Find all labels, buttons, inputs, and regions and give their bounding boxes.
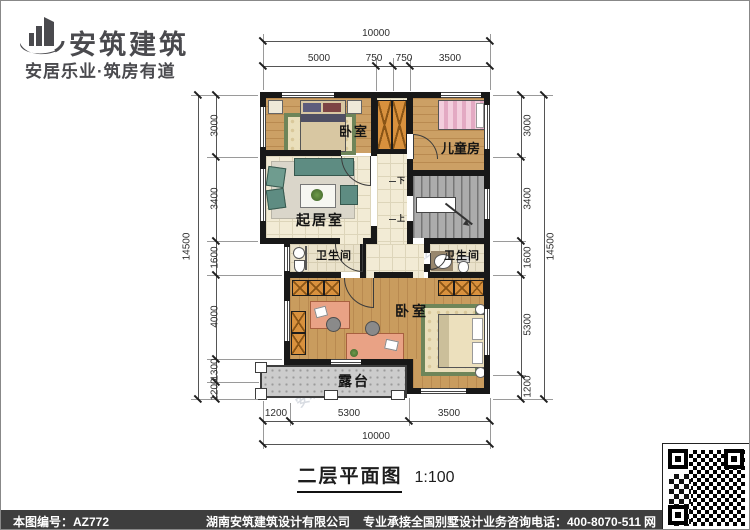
dim-top-seg: 750 (360, 53, 388, 64)
wall (377, 150, 407, 154)
dim-right-seg: 3400 (523, 177, 534, 221)
qr-code (662, 443, 750, 530)
room-label-terrace: 露台 (338, 371, 370, 391)
window (484, 105, 490, 149)
footer-bar: 本图编号：AZ772 湖南安筑建筑设计有限公司 专业承接全国别墅设计业务 咨询电… (1, 510, 750, 530)
dim-top-total: 10000 (341, 28, 411, 39)
drawing-title: 二层平面图 (297, 461, 402, 493)
dim-bottom-seg: 5300 (319, 408, 379, 419)
wall (260, 150, 341, 156)
window (284, 301, 290, 341)
room-label-children: 儿童房 (441, 138, 480, 157)
window (282, 92, 334, 98)
wall (424, 244, 430, 253)
wardrobe (392, 100, 407, 150)
wardrobe (470, 280, 484, 296)
terrace-post (255, 362, 267, 373)
drawing-sheet: 安筑建筑 安居乐业·筑房有道 安筑建筑hnaz.com 安筑建筑hnaz.com… (0, 0, 750, 530)
service-text: 专业承接全国别墅设计业务 (363, 513, 507, 530)
wall (371, 92, 377, 156)
wardrobe (324, 280, 340, 296)
dim-right-seg: 1600 (523, 236, 534, 280)
room-label-living: 起居室 (296, 210, 344, 230)
laptop (314, 306, 328, 319)
web-char: 网 (644, 513, 656, 530)
pillow (303, 103, 321, 112)
dim-line (263, 421, 490, 422)
door-leaf (370, 156, 371, 186)
company-name: 湖南安筑建筑设计有限公司 (206, 513, 350, 530)
wardrobe (292, 280, 308, 296)
wall (260, 238, 340, 244)
window (484, 309, 490, 355)
qr-finder (668, 449, 688, 469)
dim-bottom-total: 10000 (341, 431, 411, 442)
wardrobe (291, 333, 306, 355)
stair-label-up: 上 (397, 213, 405, 224)
wardrobe (291, 311, 306, 333)
window (260, 107, 266, 147)
dim-line (263, 444, 490, 445)
desk-chair (326, 317, 341, 332)
armchair (266, 188, 287, 210)
door-leaf (362, 244, 363, 272)
pillow (472, 342, 483, 364)
terrace-door (331, 359, 361, 365)
dim-right-seg: 3000 (523, 104, 534, 148)
plant (311, 189, 323, 201)
qr-finder (724, 449, 744, 469)
armchair (340, 185, 358, 205)
pillow (476, 103, 484, 128)
bath-partition (305, 246, 307, 270)
dim-top-seg: 750 (390, 53, 418, 64)
phone-text: 咨询电话：400-8070-511 (507, 513, 641, 530)
blanket-fold (439, 315, 449, 367)
room-label-bedroom-bottom: 卧室 (395, 301, 429, 321)
window (260, 169, 266, 221)
wardrobe (377, 100, 392, 150)
dim-right-total: 14500 (546, 225, 557, 269)
drawing-scale: 1:100 (414, 469, 454, 487)
dim-left-seg: 3000 (210, 104, 221, 148)
plant (350, 349, 358, 357)
pillow (323, 103, 341, 112)
room-label-bath-left: 卫生间 (316, 247, 352, 263)
wall (407, 221, 413, 244)
door-leaf (413, 134, 414, 159)
wall (407, 176, 413, 196)
wardrobe (308, 280, 324, 296)
room-label-bath-right: 卫生间 (444, 247, 480, 263)
dim-left-seg: 3400 (210, 177, 221, 221)
room-label-bedroom-top: 卧室 (339, 121, 369, 140)
dim-right-seg: 5300 (523, 303, 534, 347)
wall (424, 238, 490, 244)
dim-left-seg: 1200 (210, 368, 221, 412)
wall (284, 272, 341, 278)
wall (374, 272, 413, 278)
wall (407, 170, 490, 176)
window (441, 92, 481, 98)
window (484, 189, 490, 219)
stair-label-down: 下 (397, 175, 405, 186)
door-leaf (430, 253, 431, 270)
brand-slogan: 安居乐业·筑房有道 (25, 57, 176, 82)
dim-left-total: 14500 (182, 225, 193, 269)
wardrobe (438, 280, 454, 296)
desk-chair (365, 321, 380, 336)
stair-down-tick (389, 181, 396, 182)
bed-children (438, 100, 486, 130)
dim-line (263, 41, 490, 42)
window (284, 247, 290, 271)
dim-left-seg: 1600 (210, 236, 221, 280)
terrace-post (391, 390, 405, 400)
armchair (266, 166, 287, 188)
wall (407, 92, 413, 134)
window (421, 388, 466, 394)
dim-line (198, 95, 199, 399)
laptop (384, 339, 399, 351)
nightstand (268, 100, 283, 114)
sheet-number: 本图编号：AZ772 (13, 513, 109, 530)
dim-top-seg: 5000 (289, 53, 349, 64)
dim-left-seg: 4000 (210, 295, 221, 339)
stair-up-tick (389, 219, 396, 220)
wall (428, 272, 490, 278)
wardrobe (454, 280, 470, 296)
sink (293, 247, 305, 259)
pillow (472, 318, 483, 340)
dim-top-seg: 3500 (420, 53, 480, 64)
dim-right-seg: 1200 (523, 365, 534, 409)
wall (371, 226, 377, 244)
terrace-post (324, 390, 338, 400)
building-logo-icon (17, 13, 69, 59)
desk (346, 333, 404, 361)
dim-bottom-seg: 3500 (419, 408, 479, 419)
bed (438, 314, 486, 368)
qr-finder (668, 505, 688, 525)
dim-bottom-seg: 1200 (251, 408, 301, 419)
door-leaf (373, 278, 374, 308)
drawing-title-block: 二层平面图 1:100 (1, 461, 750, 493)
nightstand (347, 100, 362, 114)
